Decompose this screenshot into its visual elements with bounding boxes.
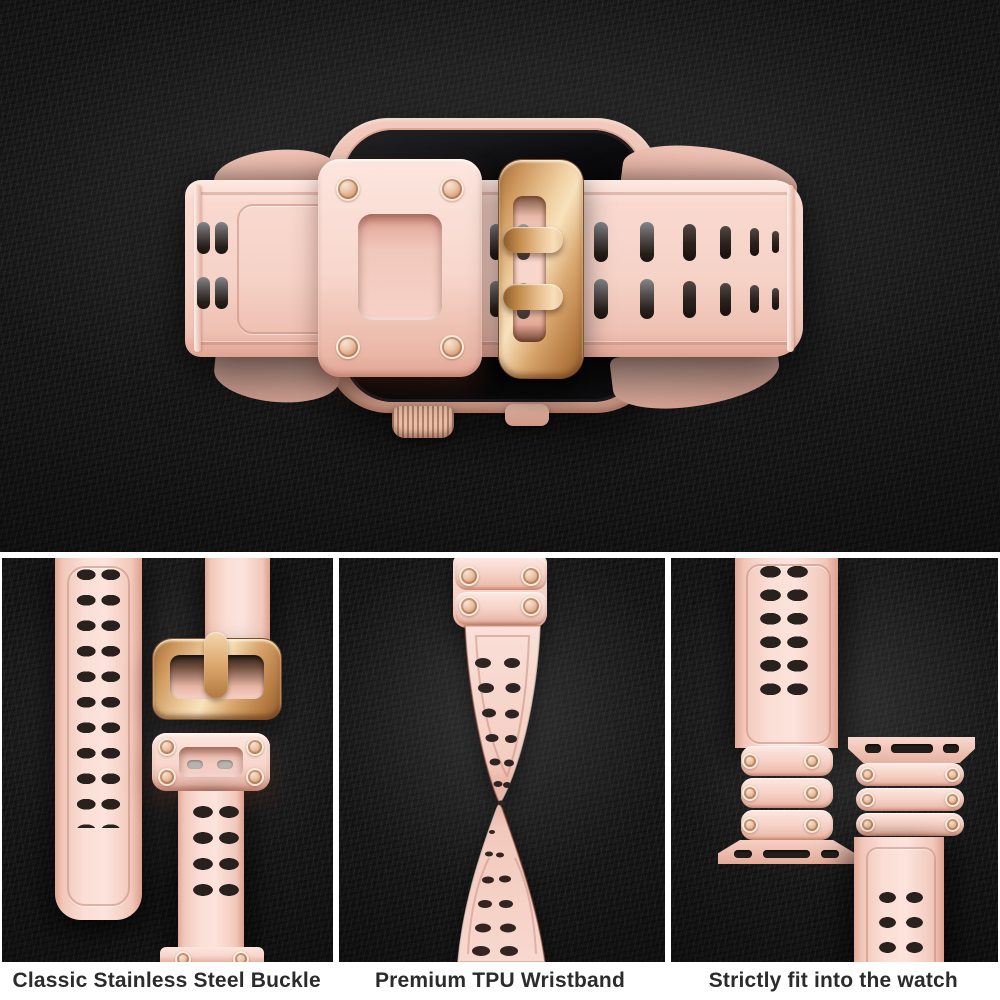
connector-slot — [763, 850, 810, 858]
digital-crown — [392, 406, 454, 438]
band-ridge-bottom — [194, 341, 794, 345]
screw — [158, 738, 176, 756]
screw — [246, 738, 264, 756]
band-hole — [197, 277, 210, 309]
detail-collage: Classic Stainless Steel Buckle Premium T… — [0, 552, 1000, 1000]
band-hole — [772, 231, 779, 253]
connector-slot — [865, 744, 881, 753]
panel-buckle-detail — [2, 558, 333, 962]
keeper-opening — [358, 214, 442, 320]
screw — [742, 817, 758, 833]
screw — [945, 767, 960, 782]
strap-holes — [757, 560, 811, 702]
panel-twist-detail — [339, 558, 665, 962]
watch-band — [185, 180, 803, 357]
band-hole — [594, 279, 608, 319]
band-hole — [215, 277, 228, 309]
caption-fit: Strictly fit into the watch — [667, 962, 1000, 1000]
product-photo-page: Classic Stainless Steel Buckle Premium T… — [0, 0, 1000, 1000]
screw — [804, 817, 820, 833]
buckle-prong — [503, 227, 563, 253]
buckle-opening — [513, 196, 546, 342]
side-button — [505, 404, 549, 426]
band-tip-right — [787, 185, 794, 352]
screw — [175, 951, 191, 962]
caption-buckle: Classic Stainless Steel Buckle — [0, 962, 333, 1000]
strap-holes — [874, 885, 928, 961]
buckle-strap-lower — [178, 791, 244, 962]
band-hole — [640, 222, 654, 262]
strap-holes — [190, 799, 242, 901]
screw — [742, 753, 758, 769]
screw — [440, 335, 464, 359]
band-hole — [772, 288, 779, 310]
band-hole — [683, 224, 696, 261]
screw — [860, 767, 875, 782]
band-hole — [720, 226, 731, 259]
screw — [440, 177, 464, 201]
connector-slot — [943, 744, 959, 753]
screw — [742, 785, 758, 801]
buckle-prong — [204, 632, 228, 698]
strap-with-holes — [854, 837, 944, 962]
buckle-frame — [498, 159, 584, 379]
watch-connector — [848, 737, 975, 763]
band-ridge-top — [194, 192, 794, 196]
screw — [860, 792, 875, 807]
screw — [246, 768, 264, 786]
band-hole — [683, 281, 696, 318]
keeper-loop-partial — [160, 947, 264, 962]
detail-panels — [0, 552, 1000, 962]
ribbed-section — [741, 746, 833, 842]
strap-holes — [74, 562, 123, 828]
connector-slot — [821, 850, 839, 858]
caption-strip: Classic Stainless Steel Buckle Premium T… — [0, 962, 1000, 1000]
keeper-loop — [152, 733, 270, 791]
screw — [804, 785, 820, 801]
band-hole — [594, 222, 608, 262]
strap-with-holes — [735, 558, 838, 748]
band-hole — [640, 279, 654, 319]
screw — [804, 753, 820, 769]
watch-connector — [718, 840, 855, 864]
screw — [860, 817, 875, 832]
screw — [158, 768, 176, 786]
strap-with-holes — [55, 558, 142, 920]
screw — [336, 335, 360, 359]
screw — [336, 177, 360, 201]
screw — [233, 951, 249, 962]
strap-slot — [187, 760, 203, 769]
panel-connector-detail — [671, 558, 998, 962]
ribbed-section — [856, 763, 964, 839]
band-hole — [720, 283, 731, 316]
connector-slot — [891, 744, 933, 753]
band-hole — [197, 222, 210, 254]
screw — [945, 792, 960, 807]
band-tip-left — [194, 185, 201, 352]
band-hole — [215, 222, 228, 254]
twisted-strap — [339, 558, 665, 962]
caption-wristband: Premium TPU Wristband — [333, 962, 666, 1000]
keeper-opening — [179, 747, 243, 777]
screw — [945, 817, 960, 832]
buckle-prong — [503, 284, 563, 310]
hero-photo — [0, 0, 1000, 552]
strap-slot — [217, 760, 233, 769]
band-hole — [750, 285, 759, 313]
connector-slot — [734, 850, 752, 858]
band-hole — [750, 228, 759, 256]
keeper-loop — [318, 159, 482, 377]
